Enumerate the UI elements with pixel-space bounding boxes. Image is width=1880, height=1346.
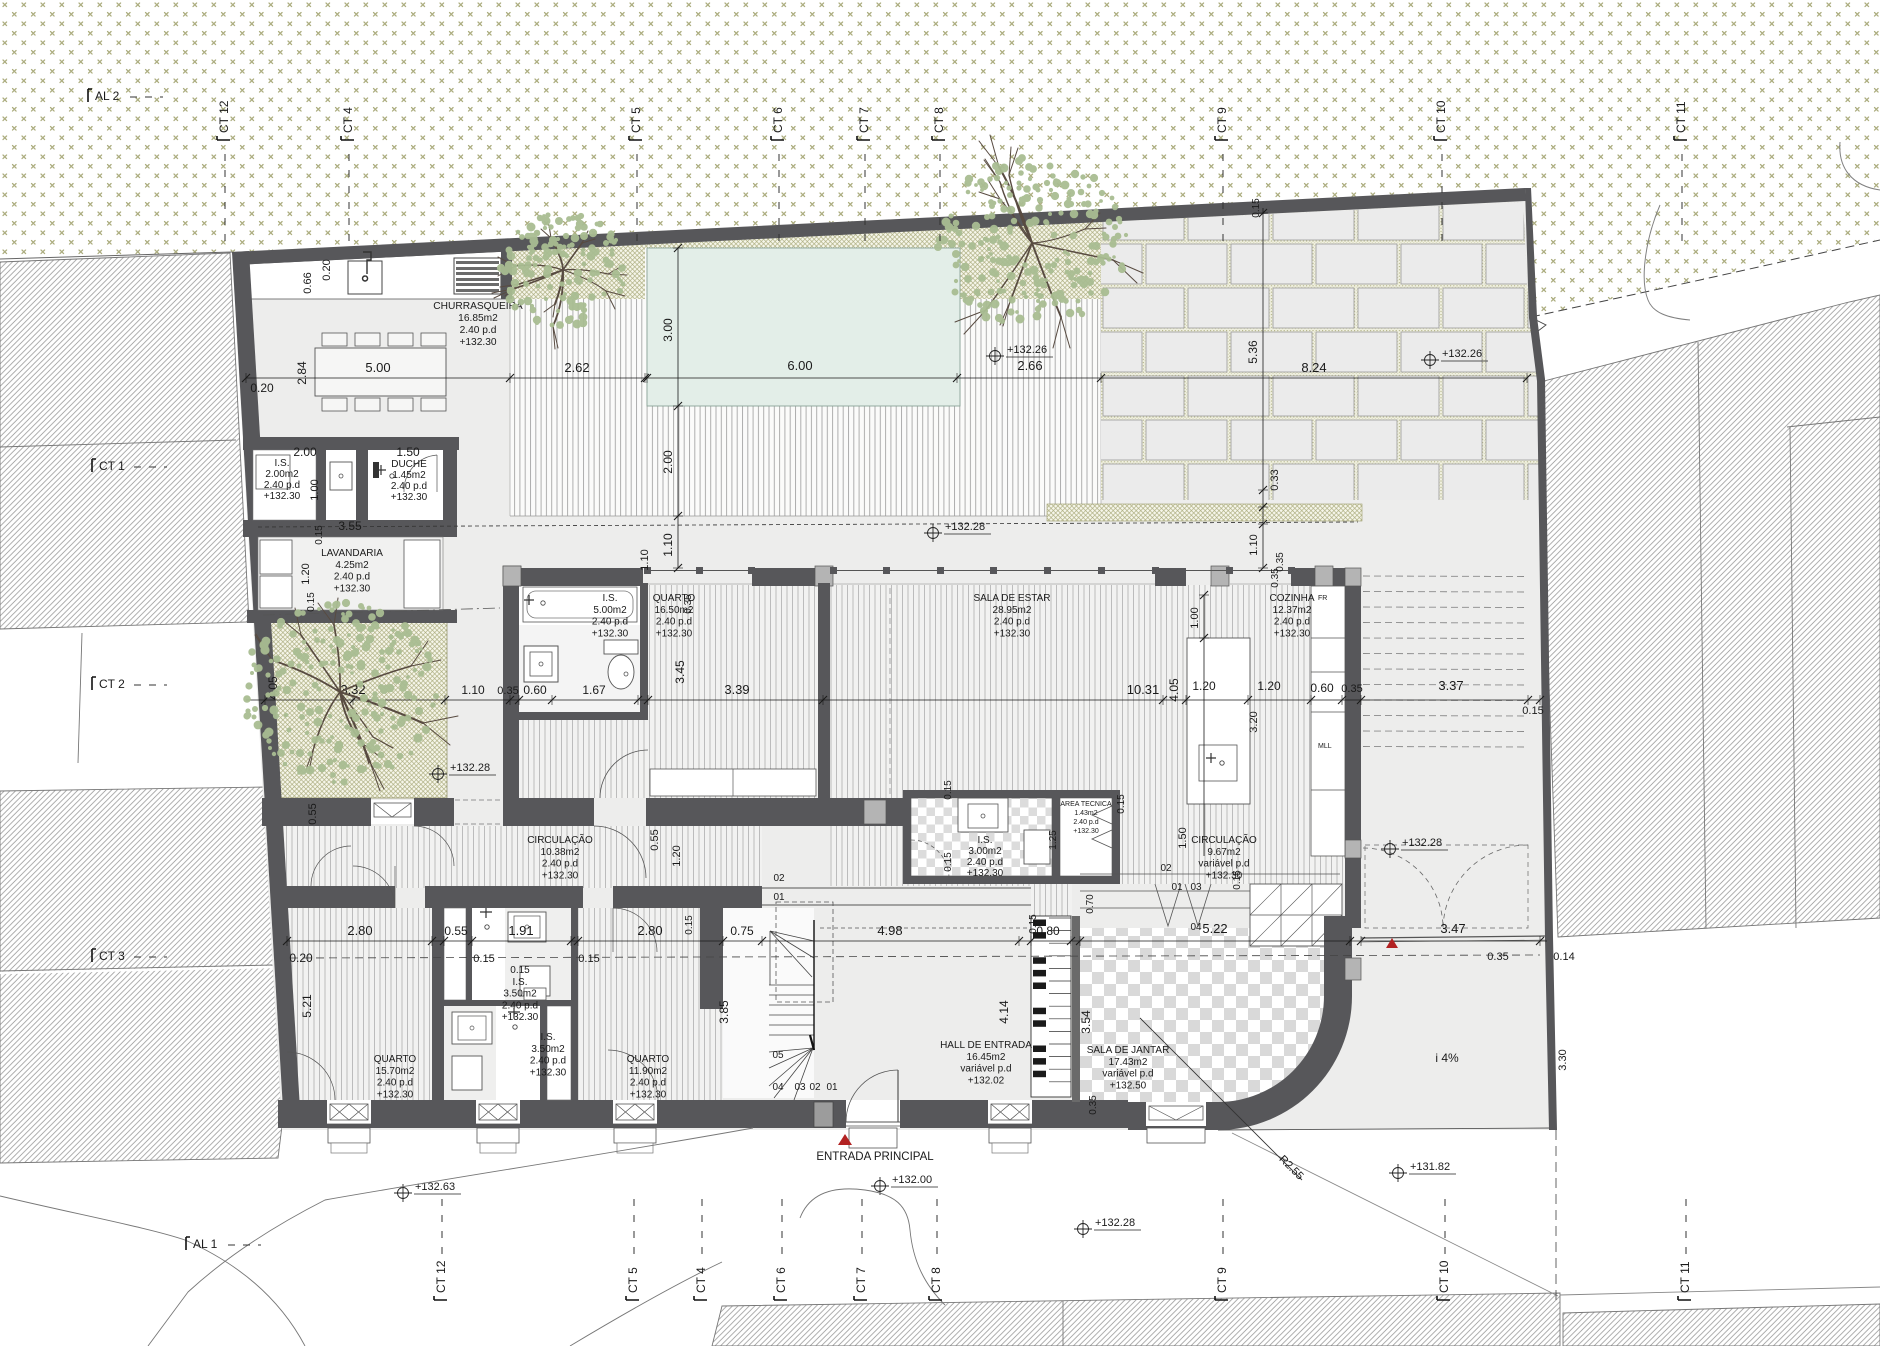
svg-text:2.40 p.d: 2.40 p.d [530, 1056, 566, 1067]
svg-text:FR: FR [1318, 595, 1327, 602]
svg-text:QUARTO: QUARTO [374, 1054, 417, 1065]
svg-text:5.00m2: 5.00m2 [593, 605, 627, 616]
svg-text:11.90m2: 11.90m2 [629, 1066, 668, 1077]
svg-text:2.40 p.d: 2.40 p.d [967, 857, 1003, 868]
svg-text:CT 6: CT 6 [771, 107, 785, 133]
svg-text:+132.28: +132.28 [1402, 837, 1442, 849]
svg-text:CT 3: CT 3 [99, 949, 125, 963]
svg-text:02: 02 [1160, 863, 1172, 874]
svg-text:+132.63: +132.63 [415, 1181, 455, 1193]
svg-text:2.00: 2.00 [293, 445, 317, 459]
svg-text:1.50: 1.50 [396, 445, 420, 459]
svg-text:3.55: 3.55 [338, 519, 362, 533]
svg-text:15.70m2: 15.70m2 [376, 1066, 415, 1077]
svg-text:28.95m2: 28.95m2 [993, 605, 1032, 616]
svg-text:CT 12: CT 12 [217, 100, 231, 133]
svg-text:+132.30: +132.30 [1073, 828, 1099, 835]
svg-text:0.20: 0.20 [250, 381, 274, 395]
svg-text:+132.30: +132.30 [994, 628, 1031, 639]
svg-text:0.35: 0.35 [1487, 951, 1508, 963]
svg-text:+132.30: +132.30 [1206, 870, 1243, 881]
svg-text:+132.30: +132.30 [542, 870, 579, 881]
svg-text:AL 2: AL 2 [95, 89, 120, 103]
svg-text:0.15: 0.15 [578, 953, 599, 965]
svg-text:2.40 p.d: 2.40 p.d [264, 480, 300, 491]
svg-text:0.15: 0.15 [1028, 914, 1039, 934]
svg-text:variável p.d: variável p.d [1198, 859, 1249, 870]
svg-text:1.00: 1.00 [309, 479, 321, 500]
svg-text:01: 01 [826, 1082, 838, 1093]
svg-text:4.14: 4.14 [997, 1000, 1011, 1024]
svg-text:0.33: 0.33 [1269, 469, 1281, 490]
svg-text:0.15: 0.15 [473, 953, 494, 965]
svg-text:6.00: 6.00 [787, 358, 812, 373]
svg-text:+132.28: +132.28 [1095, 1217, 1135, 1229]
svg-text:2.40 p.d: 2.40 p.d [592, 617, 628, 628]
svg-text:0.20: 0.20 [289, 951, 313, 965]
svg-text:1.10: 1.10 [639, 549, 651, 570]
svg-text:CT 4: CT 4 [694, 1267, 708, 1293]
svg-text:CT 5: CT 5 [629, 107, 643, 133]
svg-text:0.55: 0.55 [444, 924, 468, 938]
svg-text:0.60: 0.60 [1310, 681, 1334, 695]
svg-text:3.00: 3.00 [661, 318, 675, 342]
svg-text:+132.26: +132.26 [1007, 344, 1047, 356]
svg-text:+132.30: +132.30 [530, 1067, 567, 1078]
svg-text:CIRCULAÇÃO: CIRCULAÇÃO [527, 833, 593, 846]
svg-text:1.91: 1.91 [508, 923, 533, 938]
svg-text:03: 03 [794, 1082, 806, 1093]
svg-text:+132.30: +132.30 [656, 628, 693, 639]
svg-text:+132.30: +132.30 [334, 583, 371, 594]
svg-text:0.15: 0.15 [1522, 705, 1543, 717]
svg-text:DUCHE: DUCHE [391, 459, 427, 470]
svg-text:05: 05 [772, 1050, 784, 1061]
svg-text:+132.30: +132.30 [459, 337, 496, 348]
svg-text:0.15: 0.15 [684, 915, 695, 935]
svg-text:0.35: 0.35 [1341, 683, 1362, 695]
svg-text:0.70: 0.70 [1085, 894, 1096, 914]
svg-text:CT 8: CT 8 [929, 1267, 943, 1293]
svg-text:02: 02 [773, 873, 785, 884]
svg-text:0.35: 0.35 [1275, 552, 1286, 572]
svg-text:SALA DE JANTAR: SALA DE JANTAR [1087, 1045, 1170, 1056]
svg-text:1.50: 1.50 [1177, 827, 1189, 848]
svg-text:2.84: 2.84 [295, 361, 309, 385]
svg-text:variável p.d: variável p.d [1102, 1069, 1153, 1080]
svg-text:+132.30: +132.30 [391, 492, 428, 503]
svg-text:0.20: 0.20 [321, 259, 333, 280]
svg-text:+132.00: +132.00 [892, 1174, 932, 1186]
svg-text:4.98: 4.98 [877, 923, 902, 938]
svg-text:+132.02: +132.02 [968, 1075, 1005, 1086]
svg-text:CT 11: CT 11 [1674, 101, 1688, 133]
svg-text:CIRCULAÇÃO: CIRCULAÇÃO [1191, 833, 1257, 846]
svg-text:0.15: 0.15 [306, 592, 317, 612]
svg-text:4.25m2: 4.25m2 [335, 560, 369, 571]
svg-text:1.00: 1.00 [1189, 607, 1201, 628]
svg-text:+132.30: +132.30 [630, 1089, 667, 1100]
svg-text:3.00m2: 3.00m2 [968, 846, 1002, 857]
svg-text:2.40 p.d: 2.40 p.d [656, 617, 692, 628]
svg-text:I.S.: I.S. [274, 458, 289, 469]
svg-text:04: 04 [772, 1082, 784, 1093]
svg-text:CT 5: CT 5 [626, 1267, 640, 1293]
svg-text:2.40 p.d: 2.40 p.d [334, 572, 370, 583]
svg-text:1.67: 1.67 [582, 683, 606, 697]
svg-text:12.37m2: 12.37m2 [1273, 605, 1312, 616]
svg-text:3.50m2: 3.50m2 [531, 1044, 565, 1055]
svg-text:CT 10: CT 10 [1437, 1260, 1451, 1293]
svg-text:+132.30: +132.30 [502, 1012, 539, 1023]
svg-text:02: 02 [809, 1082, 821, 1093]
svg-text:2.40 p.d: 2.40 p.d [1073, 819, 1098, 826]
svg-text:I.S.: I.S. [540, 1032, 555, 1043]
svg-text:2.40 p.d: 2.40 p.d [630, 1078, 666, 1089]
svg-text:04: 04 [1190, 922, 1202, 933]
svg-text:0.35: 0.35 [497, 685, 518, 697]
svg-text:+132.30: +132.30 [264, 491, 301, 502]
svg-text:0.15: 0.15 [943, 852, 954, 872]
svg-text:CT 11: CT 11 [1678, 1261, 1692, 1293]
svg-text:+132.26: +132.26 [1442, 348, 1482, 360]
svg-text:0.35: 0.35 [1088, 1095, 1099, 1115]
svg-text:1.20: 1.20 [1257, 679, 1281, 693]
svg-text:16.50m2: 16.50m2 [655, 605, 694, 616]
svg-text:0.66: 0.66 [302, 272, 314, 293]
svg-text:+132.50: +132.50 [1110, 1080, 1147, 1091]
svg-text:1.10: 1.10 [661, 533, 675, 557]
svg-text:3.39: 3.39 [724, 682, 749, 697]
svg-text:i 4%: i 4% [1435, 1051, 1459, 1065]
svg-text:2.40 p.d: 2.40 p.d [994, 617, 1030, 628]
svg-text:5.00: 5.00 [365, 360, 390, 375]
svg-text:+132.28: +132.28 [450, 762, 490, 774]
svg-text:5.22: 5.22 [1202, 921, 1227, 936]
svg-text:0.75: 0.75 [730, 924, 754, 938]
svg-text:+131.82: +131.82 [1410, 1161, 1450, 1173]
svg-text:CT 7: CT 7 [857, 107, 871, 133]
svg-text:17.43m2: 17.43m2 [1109, 1057, 1148, 1068]
svg-text:16.45m2: 16.45m2 [967, 1052, 1006, 1063]
svg-text:1.10: 1.10 [1248, 534, 1260, 555]
svg-text:CT 9: CT 9 [1215, 1267, 1229, 1293]
svg-text:CT 6: CT 6 [774, 1267, 788, 1293]
svg-text:9.67m2: 9.67m2 [1207, 847, 1241, 858]
svg-text:QUARTO: QUARTO [653, 593, 696, 604]
svg-text:0.80: 0.80 [1036, 924, 1060, 938]
svg-text:2.80: 2.80 [347, 923, 372, 938]
svg-text:CT 4: CT 4 [341, 107, 355, 133]
svg-text:+132.30: +132.30 [377, 1089, 414, 1100]
svg-text:AREA TECNICA: AREA TECNICA [1060, 801, 1112, 808]
svg-text:CT 10: CT 10 [1434, 100, 1448, 133]
svg-text:2.40 p.d: 2.40 p.d [1274, 617, 1310, 628]
svg-text:0.14: 0.14 [1553, 951, 1574, 963]
svg-text:CT 8: CT 8 [932, 107, 946, 133]
svg-text:HALL DE ENTRADA: HALL DE ENTRADA [940, 1040, 1032, 1051]
svg-text:AL 1: AL 1 [193, 1237, 218, 1251]
svg-text:2.66: 2.66 [1017, 358, 1042, 373]
svg-text:2.40 p.d: 2.40 p.d [377, 1078, 413, 1089]
svg-text:ENTRADA PRINCIPAL: ENTRADA PRINCIPAL [816, 1151, 934, 1163]
svg-text:+132.30: +132.30 [592, 628, 629, 639]
svg-text:CT 7: CT 7 [854, 1267, 868, 1293]
svg-text:3.85: 3.85 [717, 1000, 731, 1024]
svg-text:3.54: 3.54 [1079, 1010, 1093, 1034]
svg-text:8.24: 8.24 [1301, 360, 1326, 375]
svg-text:I.S.: I.S. [512, 977, 527, 988]
svg-text:CT 9: CT 9 [1215, 107, 1229, 133]
svg-text:I.S.: I.S. [977, 835, 992, 846]
svg-text:+132.28: +132.28 [945, 521, 985, 533]
svg-text:1.43m2: 1.43m2 [1074, 810, 1097, 817]
svg-text:0.55: 0.55 [649, 829, 661, 850]
svg-text:+132.30: +132.30 [967, 868, 1004, 879]
svg-text:3.37: 3.37 [1438, 678, 1463, 693]
svg-text:2.80: 2.80 [637, 923, 662, 938]
svg-text:CT 12: CT 12 [434, 1260, 448, 1293]
svg-text:1.20: 1.20 [300, 563, 312, 584]
svg-text:0.15: 0.15 [943, 780, 954, 800]
svg-text:COZINHA: COZINHA [1270, 593, 1315, 604]
svg-text:3.20: 3.20 [1248, 711, 1260, 732]
svg-text:1.25: 1.25 [1048, 830, 1059, 850]
svg-text:variável p.d: variável p.d [960, 1064, 1011, 1075]
svg-text:2.40 p.d: 2.40 p.d [502, 1000, 538, 1011]
svg-text:2.40 p.d: 2.40 p.d [542, 859, 578, 870]
svg-text:5.36: 5.36 [1246, 340, 1260, 364]
svg-text:0.55: 0.55 [307, 803, 319, 824]
svg-text:2.40 p.d: 2.40 p.d [460, 325, 497, 336]
svg-text:2.00: 2.00 [661, 450, 675, 474]
svg-text:5.21: 5.21 [300, 994, 314, 1018]
svg-text:3.30: 3.30 [1557, 1049, 1569, 1070]
svg-text:4.05: 4.05 [1167, 678, 1181, 702]
svg-text:1.45m2: 1.45m2 [392, 470, 426, 481]
svg-text:10.38m2: 10.38m2 [541, 847, 580, 858]
svg-text:3.47: 3.47 [1440, 921, 1465, 936]
svg-text:LAVANDARIA: LAVANDARIA [321, 548, 383, 559]
svg-text:2.00m2: 2.00m2 [265, 469, 299, 480]
svg-text:CT 2: CT 2 [99, 677, 125, 691]
svg-text:0.60: 0.60 [523, 683, 547, 697]
svg-text:03: 03 [1190, 882, 1202, 893]
svg-text:2.40 p.d: 2.40 p.d [391, 481, 427, 492]
svg-text:I.S.: I.S. [602, 593, 617, 604]
svg-text:1.10: 1.10 [461, 683, 485, 697]
svg-text:+132.30: +132.30 [1274, 628, 1311, 639]
svg-text:0.15: 0.15 [314, 525, 325, 545]
svg-text:1.20: 1.20 [671, 845, 683, 866]
svg-text:SALA DE ESTAR: SALA DE ESTAR [973, 593, 1050, 604]
svg-text:MLL: MLL [1318, 743, 1332, 750]
svg-text:01: 01 [1171, 882, 1183, 893]
svg-text:QUARTO: QUARTO [627, 1054, 670, 1065]
svg-text:0.15: 0.15 [1251, 198, 1262, 218]
svg-text:10.31: 10.31 [1127, 682, 1160, 697]
svg-text:CT 1: CT 1 [99, 459, 125, 473]
svg-text:2.62: 2.62 [564, 360, 589, 375]
svg-text:01: 01 [773, 892, 785, 903]
svg-text:16.85m2: 16.85m2 [458, 313, 498, 324]
svg-text:3.45: 3.45 [673, 660, 687, 684]
svg-text:0.15: 0.15 [510, 965, 530, 976]
svg-text:3.50m2: 3.50m2 [503, 989, 537, 1000]
svg-text:0.15: 0.15 [1116, 794, 1127, 814]
